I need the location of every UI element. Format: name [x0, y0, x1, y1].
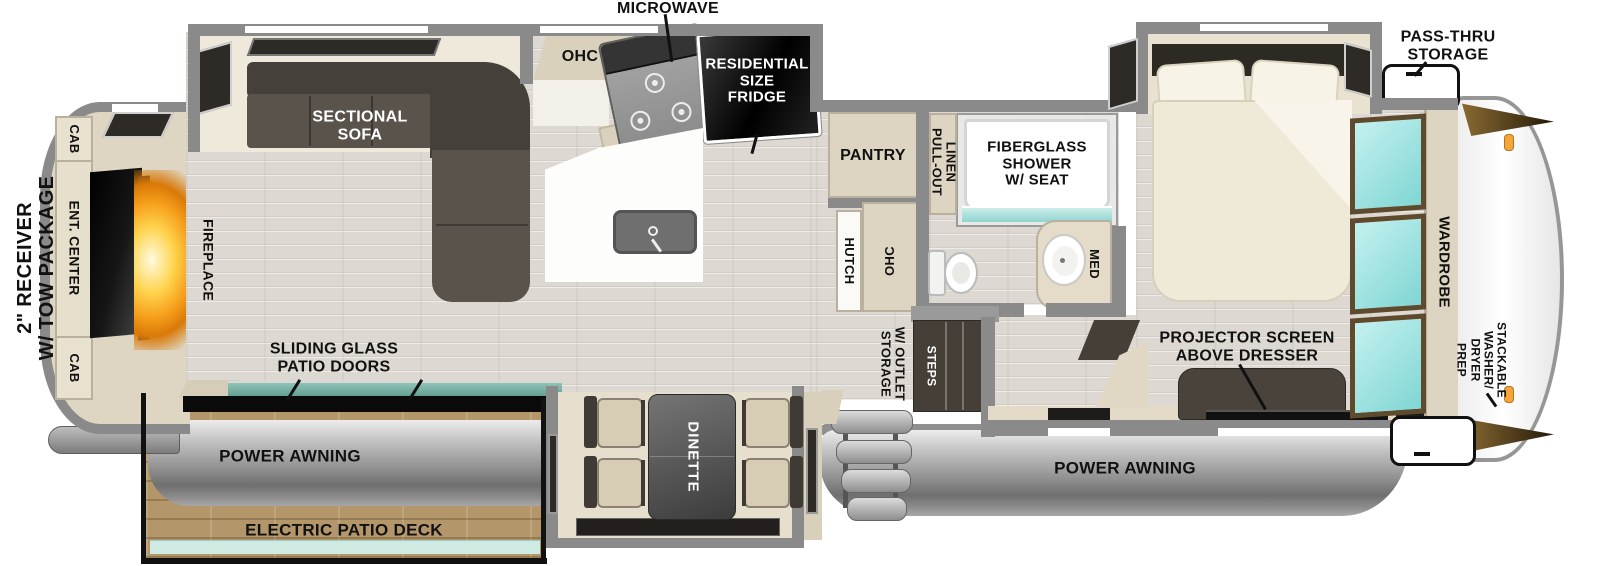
shower-line2: SHOWER [987, 156, 1087, 173]
fridge-side-wall [810, 24, 823, 112]
washer-line4: PREP [1455, 322, 1468, 398]
sectional-sofa-corner [430, 62, 530, 158]
label-med: MED [1087, 249, 1101, 279]
label-power-awning-right: POWER AWNING [1054, 460, 1196, 479]
step-tread-line-2 [962, 322, 964, 410]
dinette-side-window [548, 434, 558, 514]
dinette-window-sill [580, 549, 776, 556]
label-pantry: PANTRY [840, 147, 906, 165]
dinette-chair-arm [742, 400, 746, 446]
dinette-chair-back [584, 396, 597, 448]
rear-window [102, 112, 174, 138]
label-electric-patio-deck: ELECTRIC PATIO DECK [245, 522, 443, 541]
marker-light-top [1504, 134, 1514, 151]
label-cab-bottom: CAB [67, 353, 81, 382]
deck-trim-strip [150, 540, 540, 554]
label-fireplace: FIREPLACE [200, 219, 215, 301]
wardrobe-mirror-door-3 [1350, 313, 1426, 418]
label-power-awning-left: POWER AWNING [219, 448, 361, 467]
dinette-chair-back [790, 456, 803, 508]
front-top-wall [1382, 98, 1458, 110]
pull-out-line1: PULL-OUT [929, 128, 943, 196]
label-residential-fridge: RESIDENTIAL SIZE FRIDGE [705, 56, 808, 106]
dinette-chair [597, 458, 643, 508]
pass-thru-door-handle-bottom [1414, 452, 1430, 456]
rear-wall-window-sill [112, 104, 158, 112]
storage-outlet-line2: W/ OUTLET [892, 327, 906, 401]
receiver-line2: W/ TOW PACKAGE [36, 176, 58, 361]
entry-step-3 [841, 469, 911, 493]
stove-burner-icon [643, 71, 667, 95]
chaise-cushion-seam [436, 224, 528, 226]
label-pass-thru-storage: PASS-THRU STORAGE [1401, 28, 1496, 63]
dinette-chair-arm [641, 400, 645, 446]
sectional-sofa-chaise [432, 150, 530, 302]
bath-right-wall [1112, 226, 1126, 317]
kitchen-bath-top-wall [822, 100, 1140, 112]
washer-line3: DRYER [1468, 322, 1481, 398]
label-ent-center: ENT. CENTER [66, 200, 81, 295]
rv-floorplan: 2" RECEIVER W/ TOW PACKAGE CAB ENT. CENT… [0, 0, 1600, 566]
deck-frame-right [541, 398, 546, 562]
dinette-chair-arm [742, 460, 746, 506]
dinette-chair-arm [641, 460, 645, 506]
shower-line1: FIBERGLASS [987, 139, 1087, 156]
kitchen-counter-left [533, 80, 609, 126]
top-wall-window-cutout-1 [245, 26, 428, 33]
label-wardrobe: WARDROBE [1435, 216, 1452, 308]
label-ohc-kitchen: OHC [562, 48, 598, 66]
projector-line1: PROJECTOR SCREEN [1159, 329, 1334, 347]
fridge-line2: SIZE [705, 73, 808, 90]
dinette-exterior-window [806, 428, 818, 514]
sink-drain-icon [648, 226, 658, 236]
dinette-chair-back [790, 396, 803, 448]
fridge-line3: FRIDGE [705, 89, 808, 106]
hall-window-sill [1048, 428, 1110, 436]
bed-slide-side-window-left [1108, 38, 1138, 111]
sofa-line2: SOFA [312, 126, 407, 144]
bath-faucet-icon [1060, 258, 1065, 263]
entry-step-2 [836, 440, 912, 464]
label-dinette: DINETTE [684, 421, 701, 492]
storage-outlet-line1: STORAGE [878, 327, 892, 401]
wardrobe-mirror-door-1 [1350, 113, 1426, 214]
stove-burner-icon [629, 109, 653, 133]
label-washer-dryer-prep: STACKABLE WASHER/ DRYER PREP [1455, 322, 1508, 398]
bedroom-window-sill [1218, 428, 1390, 436]
hall-window [1048, 408, 1110, 420]
toilet-bowl [952, 262, 970, 284]
label-storage-outlet: W/ OUTLET STORAGE [878, 327, 907, 401]
top-wall-window-cutout-2 [540, 26, 658, 33]
washer-line1: STACKABLE [1494, 322, 1507, 398]
label-sliding-glass-doors: SLIDING GLASS PATIO DOORS [270, 340, 398, 375]
dinette-chair [597, 398, 643, 448]
sofa-cushion-seam-1 [309, 96, 311, 146]
fridge-line1: RESIDENTIAL [705, 56, 808, 73]
shower-line3: W/ SEAT [987, 172, 1087, 189]
label-pull-out-linen: LINEN PULL-OUT [929, 128, 958, 196]
pull-out-line2: LINEN [943, 128, 957, 196]
projector-line2: ABOVE DRESSER [1159, 347, 1334, 365]
wardrobe-mirror-door-2 [1350, 213, 1426, 314]
washer-line2: WASHER/ [1481, 322, 1494, 398]
pass-thru-line2: STORAGE [1401, 46, 1496, 64]
sofa-slide-window [247, 38, 442, 56]
entry-step-1 [831, 410, 913, 434]
label-receiver-tow-package: 2" RECEIVER W/ TOW PACKAGE [14, 176, 58, 361]
label-steps: STEPS [924, 346, 937, 387]
label-fiberglass-shower: FIBERGLASS SHOWER W/ SEAT [987, 139, 1087, 189]
label-cab-top: CAB [67, 124, 81, 153]
deck-frame-left [141, 393, 146, 564]
pass-thru-storage-door-bottom [1390, 416, 1476, 466]
step-tread-line-1 [945, 322, 947, 410]
dinette-chair [744, 398, 790, 448]
dinette-chair [744, 458, 790, 508]
bath-sink-basin [1052, 246, 1078, 276]
label-hutch-ohc: OHC [883, 246, 897, 276]
label-sectional-sofa: SECTIONAL SOFA [312, 108, 407, 143]
dinette-chair-back [584, 456, 597, 508]
patio-door-track [183, 396, 559, 412]
label-projector-screen: PROJECTOR SCREEN ABOVE DRESSER [1159, 329, 1334, 364]
sofa-slide-left-wall [188, 24, 200, 152]
patio-doors-line2: PATIO DOORS [270, 358, 398, 376]
bed-slide-window-cutout [1200, 24, 1328, 31]
sofa-line1: SECTIONAL [312, 108, 407, 126]
receiver-line1: 2" RECEIVER [14, 176, 36, 361]
stove-burner-icon [670, 100, 694, 124]
entry-step-4 [847, 497, 907, 521]
label-hutch: HUTCH [842, 238, 856, 285]
living-side-window [198, 41, 232, 115]
patio-doors-line1: SLIDING GLASS [270, 340, 398, 358]
deck-frame-bottom [141, 558, 547, 564]
pass-thru-line1: PASS-THRU [1401, 28, 1496, 46]
label-microwave: MICROWAVE [617, 0, 719, 18]
dinette-rear-window [576, 518, 780, 536]
bed-slide-side-window-right [1344, 42, 1372, 98]
